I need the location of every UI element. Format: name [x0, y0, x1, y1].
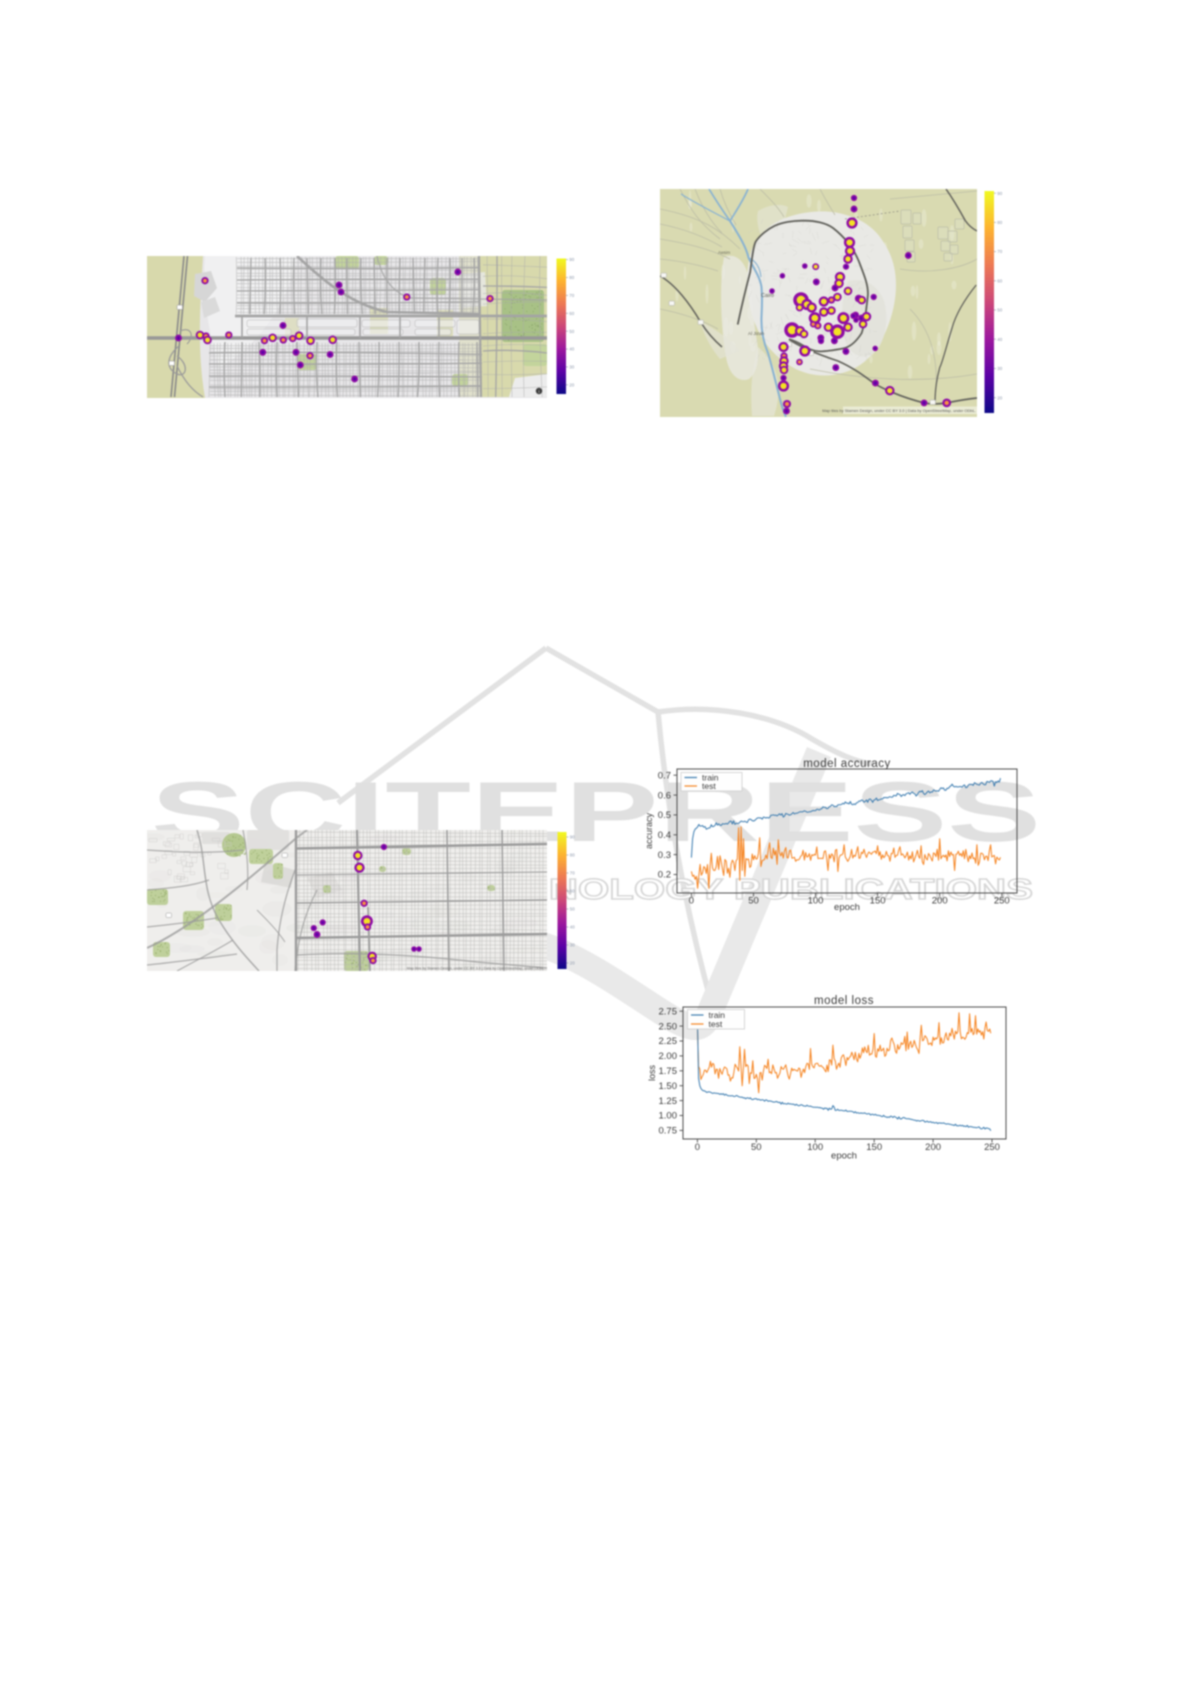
svg-text:2.25: 2.25: [659, 1036, 678, 1047]
svg-text:60: 60: [997, 278, 1003, 283]
svg-text:0.3: 0.3: [658, 850, 671, 861]
svg-text:Map tiles by Stamen Design, un: Map tiles by Stamen Design, under CC BY …: [822, 408, 976, 413]
svg-text:1.75: 1.75: [659, 1066, 678, 1077]
svg-text:2.00: 2.00: [659, 1051, 678, 1062]
svg-text:60: 60: [569, 311, 575, 316]
svg-text:30: 30: [569, 365, 575, 370]
svg-text:250: 250: [984, 1142, 1000, 1153]
svg-text:200: 200: [925, 1142, 941, 1153]
svg-text:model accuracy: model accuracy: [803, 758, 891, 770]
svg-text:2.75: 2.75: [659, 1006, 678, 1017]
svg-text:accuracy: accuracy: [644, 812, 654, 849]
svg-text:50: 50: [997, 308, 1003, 313]
svg-text:70: 70: [570, 871, 576, 876]
svg-text:30: 30: [570, 943, 576, 948]
svg-text:80: 80: [570, 853, 576, 858]
svg-text:20: 20: [997, 395, 1003, 400]
svg-text:1.50: 1.50: [659, 1081, 678, 1092]
svg-text:70: 70: [569, 293, 575, 298]
svg-text:0.75: 0.75: [659, 1126, 678, 1137]
svg-text:0.2: 0.2: [658, 870, 671, 881]
svg-text:100: 100: [807, 1142, 823, 1153]
svg-text:epoch: epoch: [834, 902, 860, 913]
svg-text:Awsim: Awsim: [718, 250, 731, 255]
svg-text:80: 80: [997, 220, 1003, 225]
svg-text:40: 40: [997, 337, 1003, 342]
svg-text:90: 90: [570, 835, 576, 840]
svg-text:2.50: 2.50: [659, 1021, 678, 1032]
svg-text:0.4: 0.4: [658, 830, 671, 841]
svg-text:20: 20: [570, 961, 576, 966]
svg-text:1.00: 1.00: [659, 1111, 678, 1122]
svg-text:0.7: 0.7: [658, 770, 671, 781]
svg-text:150: 150: [870, 896, 886, 907]
svg-text:50: 50: [748, 896, 759, 907]
svg-text:1.25: 1.25: [659, 1096, 678, 1107]
svg-text:Map tiles by Stamen Design, un: Map tiles by Stamen Design, under CC BY …: [407, 967, 545, 971]
svg-text:epoch: epoch: [831, 1151, 857, 1162]
svg-text:50: 50: [570, 907, 576, 912]
svg-text:40: 40: [569, 347, 575, 352]
svg-text:150: 150: [866, 1142, 882, 1153]
svg-text:0: 0: [695, 1142, 700, 1153]
svg-text:90: 90: [997, 191, 1003, 196]
svg-text:i: i: [539, 389, 540, 394]
svg-text:Al Jizah: Al Jizah: [748, 331, 765, 336]
svg-text:Cairo: Cairo: [761, 293, 774, 299]
svg-text:0: 0: [689, 896, 694, 907]
svg-text:50: 50: [751, 1142, 762, 1153]
svg-text:70: 70: [997, 249, 1003, 254]
svg-text:loss: loss: [647, 1065, 657, 1082]
svg-text:90: 90: [569, 257, 575, 262]
svg-text:test: test: [709, 1019, 723, 1029]
svg-text:40: 40: [570, 925, 576, 930]
svg-text:20: 20: [569, 382, 575, 387]
svg-text:100: 100: [808, 896, 824, 907]
svg-text:0.6: 0.6: [658, 790, 671, 801]
svg-text:0.5: 0.5: [658, 810, 671, 821]
svg-text:30: 30: [997, 366, 1003, 371]
svg-text:model loss: model loss: [814, 995, 874, 1007]
svg-text:50: 50: [569, 329, 575, 334]
svg-text:250: 250: [994, 896, 1010, 907]
svg-text:200: 200: [932, 896, 948, 907]
svg-text:60: 60: [570, 889, 576, 894]
svg-text:80: 80: [569, 275, 575, 280]
svg-text:test: test: [702, 781, 716, 791]
